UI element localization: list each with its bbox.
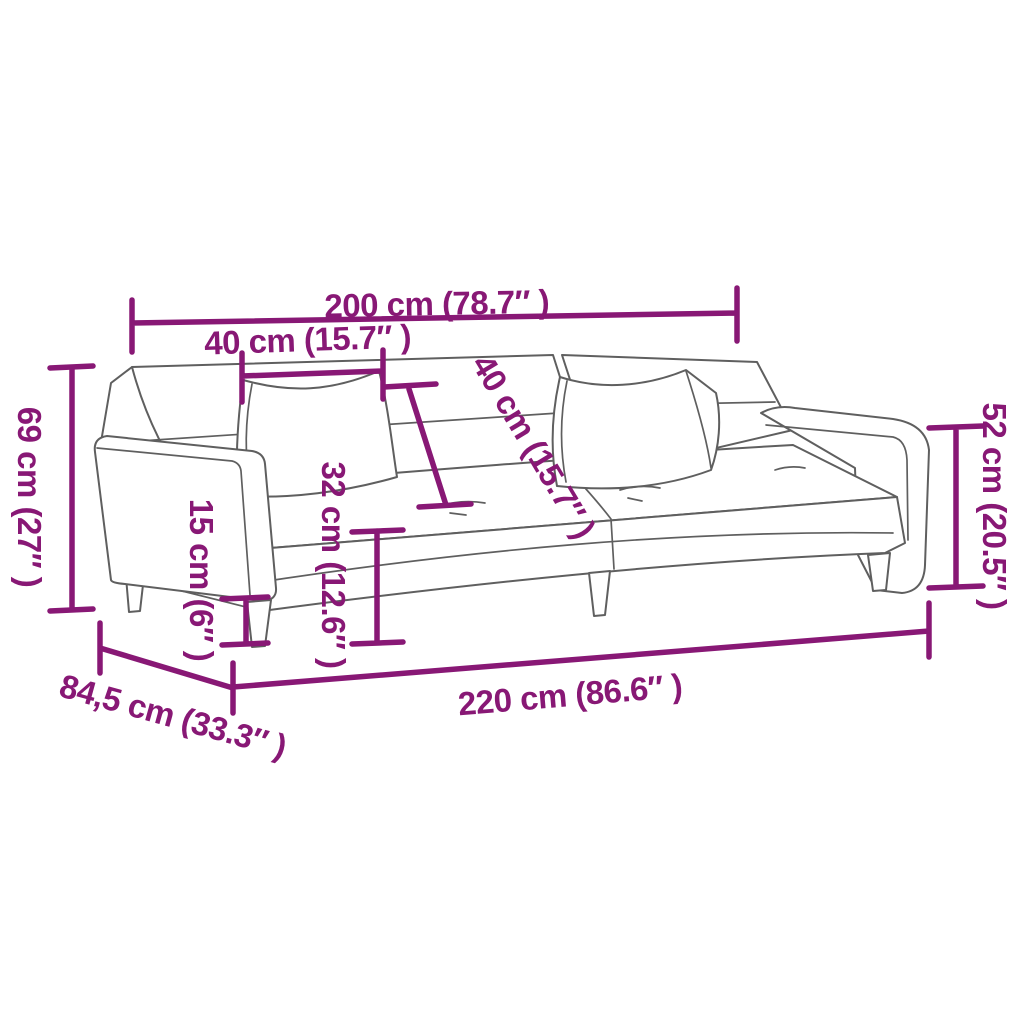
dim-label-seat-height: 32 cm (12.6″ ) (315, 462, 352, 669)
dim-total-height-lines (50, 366, 93, 611)
dim-backrest-height: 52 cm (20.5″ ) (929, 403, 1013, 610)
dim-label-total-length: 220 cm (86.6″ ) (456, 667, 683, 723)
dim-label-clearance-height: 15 cm (6″ ) (183, 499, 220, 662)
sofa-leg-right (868, 553, 890, 591)
dim-total-height: 69 cm (27″ ) (11, 366, 93, 611)
sofa-pillow-right (553, 370, 719, 488)
dim-backrest-height-lines (929, 426, 983, 588)
dim-label-total-depth: 84,5 cm (33.3″ ) (56, 667, 291, 765)
dim-label-cushion-width: 40 cm (15.7″ ) (204, 317, 412, 361)
dim-label-backrest-height: 52 cm (20.5″ ) (976, 403, 1013, 610)
sofa-leg-middle (589, 571, 610, 616)
sofa-dimension-diagram: 200 cm (78.7″ ) 40 cm (15.7″ ) 40 cm (15… (0, 0, 1024, 1024)
dim-label-total-width: 200 cm (78.7″ ) (324, 283, 550, 325)
dim-label-total-height: 69 cm (27″ ) (11, 407, 48, 587)
sofa-leg-front-left (247, 600, 271, 647)
diagram-canvas: 200 cm (78.7″ ) 40 cm (15.7″ ) 40 cm (15… (0, 0, 1024, 1024)
